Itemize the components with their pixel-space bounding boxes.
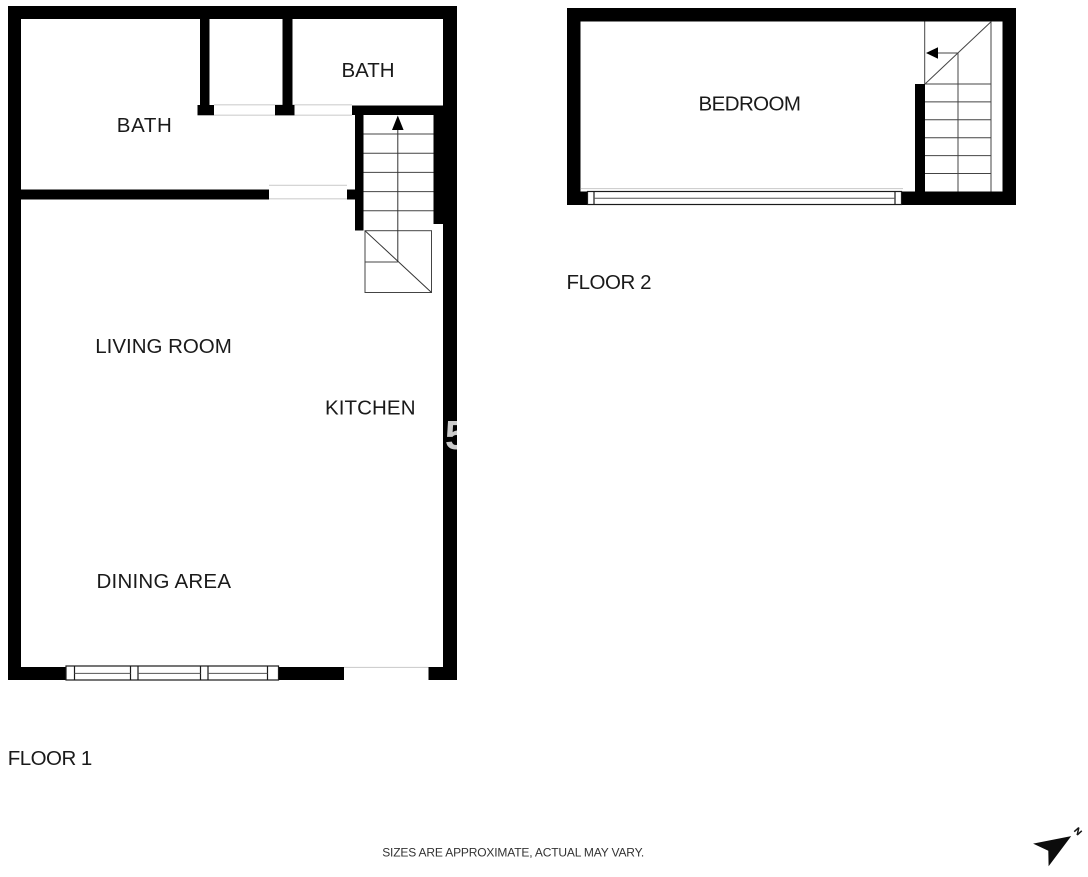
svg-text:BEDROOM: BEDROOM bbox=[699, 92, 802, 115]
svg-text:SIZES ARE APPROXIMATE, ACTUAL: SIZES ARE APPROXIMATE, ACTUAL MAY VARY. bbox=[382, 846, 644, 860]
svg-text:KITCHEN: KITCHEN bbox=[325, 397, 416, 420]
svg-text:BATH: BATH bbox=[117, 114, 172, 137]
svg-text:FLOOR 1: FLOOR 1 bbox=[8, 747, 93, 770]
svg-text:LIVING ROOM: LIVING ROOM bbox=[95, 335, 232, 358]
svg-text:DINING AREA: DINING AREA bbox=[97, 570, 232, 593]
svg-text:BATH: BATH bbox=[342, 59, 395, 82]
svg-text:FLOOR 2: FLOOR 2 bbox=[567, 271, 652, 294]
